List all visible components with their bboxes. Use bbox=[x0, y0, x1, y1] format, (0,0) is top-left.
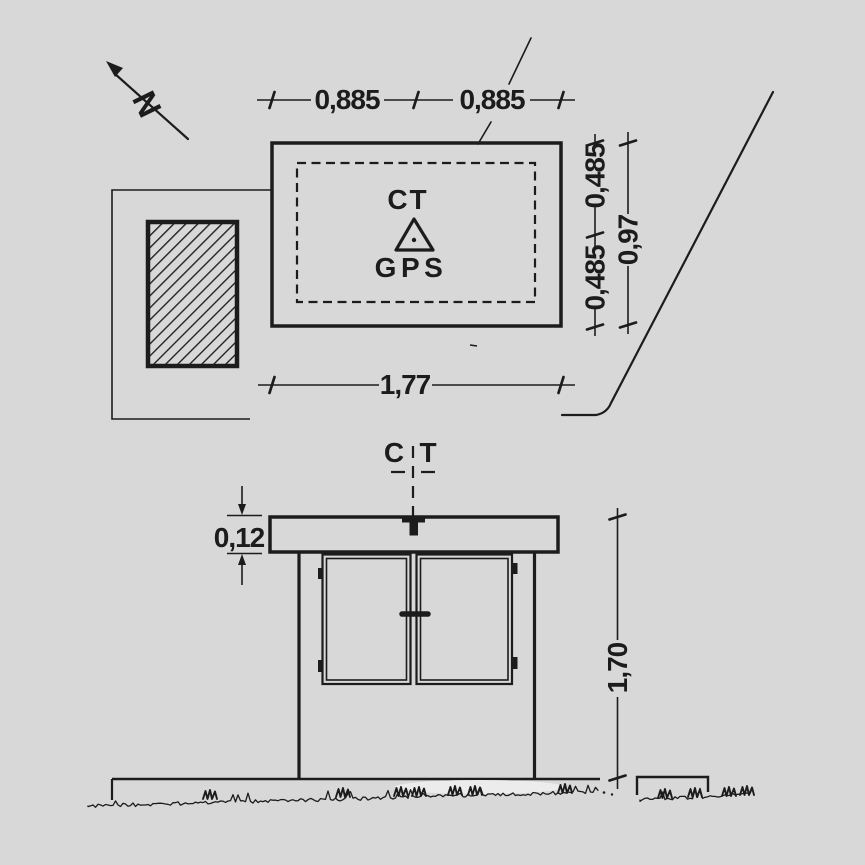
dim-roof-thickness: 0,12 bbox=[214, 486, 265, 585]
grass-stroke bbox=[688, 788, 702, 797]
dim-right-total-label: 0,97 bbox=[613, 214, 644, 265]
dim-bottom: 1,77 bbox=[258, 369, 575, 400]
north-arrow-icon: N bbox=[106, 61, 188, 139]
grass-stroke bbox=[203, 790, 217, 799]
station-label-ct: CT bbox=[387, 184, 428, 215]
grass-stroke bbox=[558, 784, 572, 793]
dim-top-left-label: 0,885 bbox=[314, 84, 379, 115]
door-left-panel bbox=[323, 555, 411, 685]
station-label-gps: GPS bbox=[375, 252, 448, 283]
dim-right-lower-label: 0,485 bbox=[580, 245, 611, 310]
station-marker: CT GPS bbox=[375, 184, 448, 283]
building-outline bbox=[272, 143, 561, 326]
grass-stroke bbox=[394, 787, 408, 796]
double-door bbox=[318, 555, 518, 685]
dim-roof-label: 0,12 bbox=[214, 522, 265, 553]
station-triangle-icon bbox=[396, 219, 433, 250]
dim-top-right-label: 0,885 bbox=[459, 84, 524, 115]
centerline-label-c: C bbox=[384, 437, 406, 468]
hinge bbox=[318, 660, 323, 672]
centerline-label-t: T bbox=[419, 437, 438, 468]
dim-height: 1,70 bbox=[602, 508, 633, 789]
pillar-hatched bbox=[148, 222, 237, 366]
dim-bottom-label: 1,77 bbox=[380, 369, 431, 400]
door-right-panel bbox=[417, 555, 513, 685]
dim-right-upper-label: 0,485 bbox=[580, 143, 611, 208]
dim-right-total: 0,97 bbox=[613, 132, 644, 334]
hinge bbox=[318, 568, 323, 579]
scanned-survey-drawing: N CT GPS 0,885 0,885 bbox=[0, 0, 865, 865]
dim-height-label: 1,70 bbox=[602, 642, 633, 693]
curb-step bbox=[637, 777, 708, 795]
dim-top: 0,885 0,885 bbox=[257, 84, 575, 115]
elevation-view: C T bbox=[88, 437, 754, 807]
hinge bbox=[513, 563, 518, 574]
grass-stroke bbox=[336, 788, 350, 797]
hinge bbox=[513, 657, 518, 669]
station-dot bbox=[412, 238, 416, 242]
plan-view: N CT GPS 0,885 0,885 bbox=[106, 38, 773, 419]
centerline-mark: C T bbox=[384, 437, 439, 516]
roof-bolt-icon bbox=[402, 516, 425, 536]
ground bbox=[88, 777, 754, 807]
drawing-svg: N CT GPS 0,885 0,885 bbox=[0, 0, 865, 865]
dim-right-halves: 0,485 0,485 bbox=[580, 134, 611, 336]
scan-speck bbox=[470, 345, 477, 346]
